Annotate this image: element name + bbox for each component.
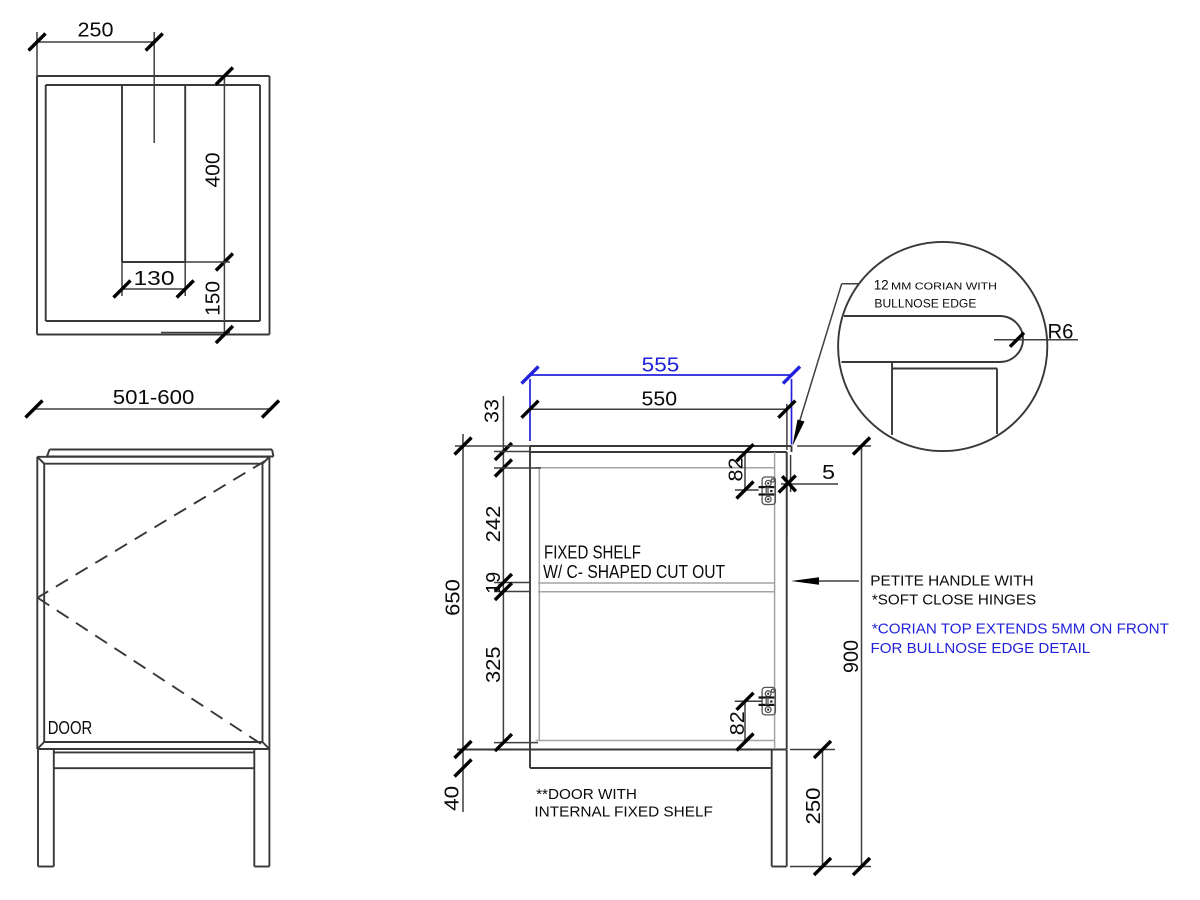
svg-text:501-600: 501-600 [113,386,195,409]
svg-text:33: 33 [481,399,504,423]
svg-text:40: 40 [440,786,463,811]
svg-text:150: 150 [202,281,225,316]
svg-text:INTERNAL FIXED SHELF: INTERNAL FIXED SHELF [534,804,713,821]
svg-text:82: 82 [726,711,749,735]
svg-text:BULLNOSE EDGE: BULLNOSE EDGE [874,299,976,311]
svg-text:130: 130 [134,267,175,290]
svg-text:DOOR: DOOR [48,717,93,738]
svg-text:R6: R6 [1048,321,1074,344]
svg-text:PETITE HANDLE WITH: PETITE HANDLE WITH [870,572,1033,589]
svg-text:FIXED SHELF: FIXED SHELF [544,542,641,563]
svg-text:650: 650 [442,579,465,616]
svg-text:**DOOR WITH: **DOOR WITH [536,786,637,803]
svg-text:555: 555 [642,353,680,376]
svg-text:250: 250 [78,19,114,42]
svg-text:FOR BULLNOSE EDGE DETAIL: FOR BULLNOSE EDGE DETAIL [871,640,1091,657]
svg-text:250: 250 [802,788,825,825]
svg-text:*SOFT CLOSE HINGES: *SOFT CLOSE HINGES [872,591,1036,608]
svg-text:550: 550 [642,388,678,411]
svg-text:*CORIAN TOP EXTENDS 5MM ON FRO: *CORIAN TOP EXTENDS 5MM ON FRONT [872,620,1169,637]
svg-text:MM CORIAN WITH: MM CORIAN WITH [891,281,997,293]
svg-text:900: 900 [839,640,863,673]
svg-text:400: 400 [202,153,225,188]
svg-text:W/ C- SHAPED CUT OUT: W/ C- SHAPED CUT OUT [543,561,725,582]
svg-text:82: 82 [724,458,747,482]
svg-text:242: 242 [482,506,505,543]
svg-text:5: 5 [822,461,835,484]
svg-text:19: 19 [482,572,505,594]
svg-text:12: 12 [874,277,889,293]
svg-text:325: 325 [482,646,505,683]
